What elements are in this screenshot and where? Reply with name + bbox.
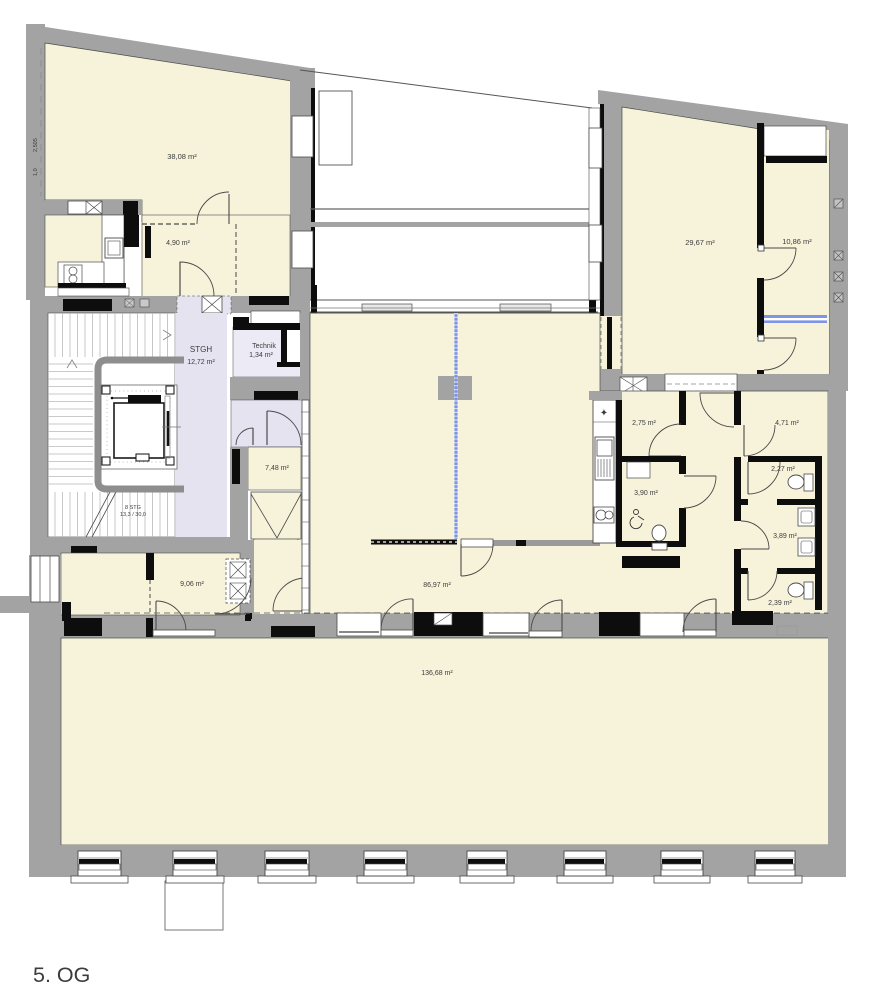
svg-text:12,72 m²: 12,72 m² xyxy=(187,359,215,366)
svg-text:136,68 m²: 136,68 m² xyxy=(421,670,453,677)
svg-text:2,39 m²: 2,39 m² xyxy=(768,600,792,607)
svg-text:4,90 m²: 4,90 m² xyxy=(166,240,190,247)
svg-text:1,0: 1,0 xyxy=(33,168,39,176)
svg-text:STGH: STGH xyxy=(190,345,212,354)
svg-text:1,34 m²: 1,34 m² xyxy=(249,352,273,359)
svg-text:2,505: 2,505 xyxy=(33,138,39,152)
svg-text:2,75 m²: 2,75 m² xyxy=(632,420,656,427)
svg-text:5. OG: 5. OG xyxy=(33,963,90,987)
svg-text:4,71 m²: 4,71 m² xyxy=(775,420,799,427)
svg-text:Technik: Technik xyxy=(252,343,276,350)
svg-text:10,86 m²: 10,86 m² xyxy=(782,237,812,246)
svg-text:3,89 m²: 3,89 m² xyxy=(773,533,797,540)
svg-text:38,08 m²: 38,08 m² xyxy=(167,152,197,161)
svg-text:86,97 m²: 86,97 m² xyxy=(423,582,451,589)
svg-text:7,48 m²: 7,48 m² xyxy=(265,465,289,472)
svg-text:3,90 m²: 3,90 m² xyxy=(634,490,658,497)
svg-text:13,3 / 30,0: 13,3 / 30,0 xyxy=(120,512,146,518)
svg-text:✦: ✦ xyxy=(600,408,608,419)
svg-text:29,67 m²: 29,67 m² xyxy=(685,238,715,247)
svg-text:2,27 m²: 2,27 m² xyxy=(771,466,795,473)
svg-text:9,06 m²: 9,06 m² xyxy=(180,581,204,588)
svg-text:8 STG: 8 STG xyxy=(125,505,141,511)
